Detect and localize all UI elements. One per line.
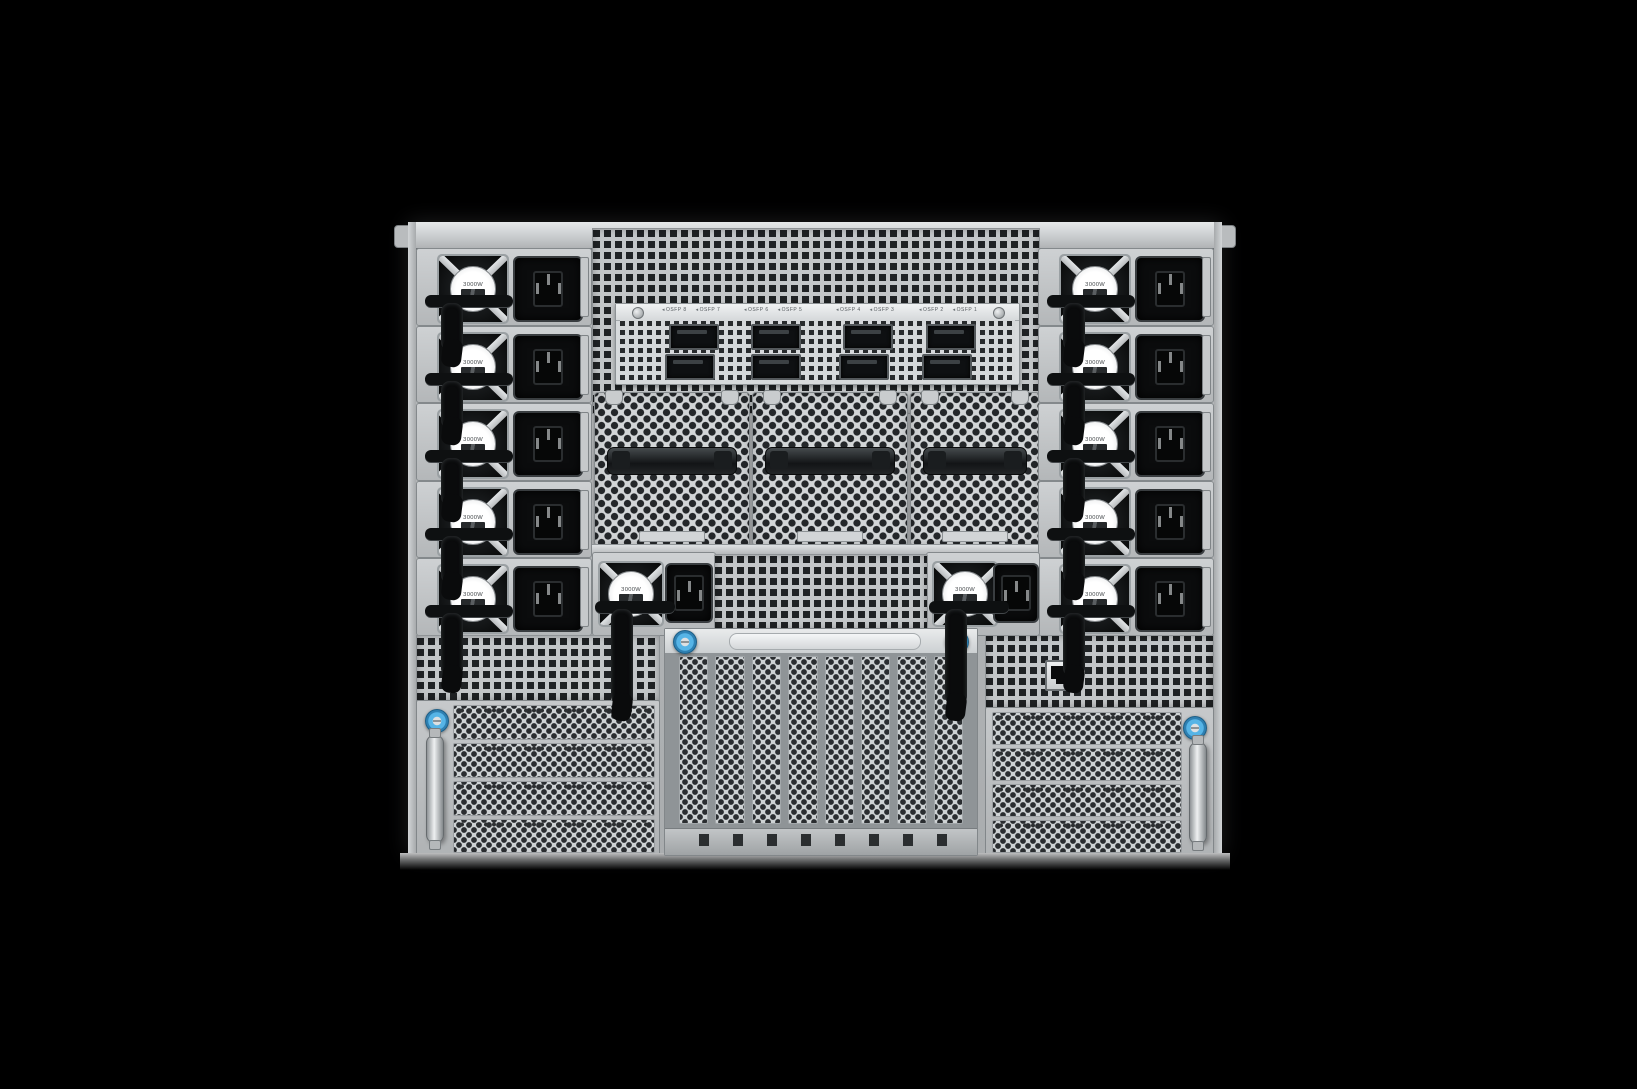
power-supply: 3000W <box>1038 248 1214 326</box>
side-rail-right <box>1214 222 1222 854</box>
vertical-slot-cover <box>825 656 854 824</box>
velcro-strap-icon <box>1063 381 1085 429</box>
psu-latch <box>1202 257 1211 317</box>
tray-latch <box>942 531 1008 542</box>
osfp-port <box>751 354 801 380</box>
triangle-icon: ◂ <box>778 307 781 313</box>
pcie-slot-cover <box>992 748 1182 781</box>
blue-thumbscrew-icon <box>673 630 697 654</box>
psu-wattage: 3000W <box>463 283 483 288</box>
psu-latch <box>580 567 589 627</box>
osfp-label-group: ◂OSFP 4 ◂OSFP 3 <box>836 307 896 312</box>
osfp-label-group: ◂OSFP 8 ◂OSFP 7 <box>662 307 722 312</box>
osfp-label-group: ◂OSFP 2 ◂OSFP 1 <box>919 307 979 312</box>
osfp-label: OSFP 1 <box>957 307 978 313</box>
osfp-port <box>926 324 976 350</box>
osfp-label: OSFP 5 <box>782 307 803 313</box>
triangle-icon: ◂ <box>696 307 699 313</box>
velcro-strap-icon <box>441 381 463 429</box>
bay-handle-icon <box>426 735 444 843</box>
psu-wattage: 3000W <box>463 593 483 598</box>
riser-bottom-rail <box>665 828 977 855</box>
velcro-strap-icon <box>945 609 967 705</box>
c19-power-inlet <box>1135 489 1205 555</box>
riser-handle <box>729 633 921 650</box>
psu-handle-icon <box>425 605 513 617</box>
velcro-strap-icon <box>441 303 463 351</box>
triangle-icon: ◂ <box>836 307 839 313</box>
psu-wattage: 3000W <box>1085 360 1105 365</box>
osfp-label: OSFP 3 <box>874 307 895 313</box>
tray-handle-icon <box>923 447 1027 475</box>
psu-wattage: 3000W <box>463 360 483 365</box>
psu-handle-icon <box>1047 450 1135 462</box>
side-rail-left <box>408 222 416 854</box>
psu-handle-icon <box>425 450 513 462</box>
osfp-label: OSFP 7 <box>700 307 721 313</box>
triangle-icon: ◂ <box>953 307 956 313</box>
fan-tray <box>910 392 1040 546</box>
psu-column-left: 3000W 3000W 3000W 3000W <box>416 248 592 636</box>
expansion-bay-right <box>985 707 1214 856</box>
osfp-panel-body <box>620 320 1015 380</box>
osfp-port <box>843 324 893 350</box>
velcro-strap-icon <box>1063 613 1085 677</box>
c19-power-inlet <box>665 563 713 623</box>
triangle-icon: ◂ <box>919 307 922 313</box>
product-photo-background: ◂OSFP 8 ◂OSFP 7 ◂OSFP 6 ◂OSFP 5 ◂OSFP 4 … <box>0 0 1637 1089</box>
psu-latch <box>1202 412 1211 472</box>
psu-wattage: 3000W <box>1085 593 1105 598</box>
c19-power-inlet <box>1135 566 1205 632</box>
osfp-port <box>665 354 715 380</box>
velcro-strap-icon <box>611 609 633 705</box>
vertical-slot-cover <box>715 656 744 824</box>
psu-handle-icon <box>929 601 1009 613</box>
c19-power-inlet <box>513 256 583 322</box>
bottom-right-vent-grille <box>985 635 1214 708</box>
osfp-label: OSFP 2 <box>923 307 944 313</box>
psu-handle-icon <box>425 295 513 307</box>
psu-handle-icon <box>595 601 675 613</box>
velcro-strap-icon <box>1063 303 1085 351</box>
psu-handle-icon <box>1047 528 1135 540</box>
triangle-icon: ◂ <box>662 307 665 313</box>
vertical-slot-cover <box>788 656 817 824</box>
psu-latch <box>580 412 589 472</box>
c19-power-inlet <box>513 566 583 632</box>
osfp-port <box>669 324 719 350</box>
psu-column-right: 3000W 3000W 3000W 3000W <box>1038 248 1214 636</box>
c19-power-inlet <box>993 563 1039 623</box>
psu-wattage: 3000W <box>463 515 483 520</box>
vertical-slot-cover <box>897 656 926 824</box>
tray-latch <box>639 531 705 542</box>
pcie-slot-cover <box>992 712 1182 745</box>
osfp-network-panel: ◂OSFP 8 ◂OSFP 7 ◂OSFP 6 ◂OSFP 5 ◂OSFP 4 … <box>615 303 1020 385</box>
psu-handle-icon <box>425 528 513 540</box>
osfp-port <box>839 354 889 380</box>
velcro-strap-icon <box>1063 536 1085 584</box>
power-supply: 3000W <box>416 248 592 326</box>
server-rear-chassis: ◂OSFP 8 ◂OSFP 7 ◂OSFP 6 ◂OSFP 5 ◂OSFP 4 … <box>408 222 1222 854</box>
c19-power-inlet <box>1135 256 1205 322</box>
tray-handle-icon <box>765 447 895 475</box>
psu-wattage: 3000W <box>621 588 641 593</box>
psu-wattage: 3000W <box>1085 515 1105 520</box>
panel-screw-icon <box>632 307 644 319</box>
psu-wattage: 3000W <box>955 588 975 593</box>
psu-wattage: 3000W <box>463 438 483 443</box>
psu-handle-icon <box>1047 373 1135 385</box>
triangle-icon: ◂ <box>870 307 873 313</box>
psu-wattage: 3000W <box>1085 438 1105 443</box>
osfp-label-strip: ◂OSFP 8 ◂OSFP 7 ◂OSFP 6 ◂OSFP 5 ◂OSFP 4 … <box>616 304 1019 321</box>
vertical-slot-cover <box>679 656 708 824</box>
vertical-slot-cover <box>861 656 890 824</box>
velcro-strap-icon <box>441 613 463 677</box>
power-supply: 3000W <box>926 552 1040 636</box>
osfp-label: OSFP 8 <box>666 307 687 313</box>
tray-handle-icon <box>607 447 737 475</box>
fan-tray <box>752 392 908 546</box>
pcie-slot-cover <box>992 820 1182 853</box>
psu-latch <box>580 257 589 317</box>
velcro-strap-icon <box>1063 458 1085 506</box>
c19-power-inlet <box>1135 411 1205 477</box>
tray-latch <box>797 531 863 542</box>
psu-handle-icon <box>1047 605 1135 617</box>
c19-power-inlet <box>1135 334 1205 400</box>
c19-power-inlet <box>513 334 583 400</box>
psu-latch <box>1202 335 1211 395</box>
psu-latch <box>1202 567 1211 627</box>
psu-wattage: 3000W <box>1085 283 1105 288</box>
osfp-port <box>751 324 801 350</box>
pcie-slot-cover <box>453 743 655 778</box>
power-supply: 3000W <box>592 552 716 636</box>
expansion-bay-left <box>416 700 660 856</box>
psu-latch <box>580 490 589 550</box>
osfp-port <box>922 354 972 380</box>
velcro-strap-icon <box>441 458 463 506</box>
psu-latch <box>1202 490 1211 550</box>
pcie-slot-cover <box>453 781 655 816</box>
osfp-label: OSFP 4 <box>840 307 861 313</box>
vertical-slot-cover <box>752 656 781 824</box>
center-riser-module <box>664 628 978 856</box>
psu-latch <box>580 335 589 395</box>
panel-screw-icon <box>993 307 1005 319</box>
c19-power-inlet <box>513 489 583 555</box>
rack-ear-right <box>1220 225 1236 248</box>
pcie-slot-cover <box>453 819 655 853</box>
osfp-label-group: ◂OSFP 6 ◂OSFP 5 <box>744 307 804 312</box>
pcie-slot-cover <box>992 784 1182 817</box>
bay-handle-icon <box>1189 742 1207 844</box>
velcro-strap-icon <box>441 536 463 584</box>
triangle-icon: ◂ <box>744 307 747 313</box>
fan-tray <box>594 392 750 546</box>
osfp-label: OSFP 6 <box>748 307 769 313</box>
psu-handle-icon <box>425 373 513 385</box>
c19-power-inlet <box>513 411 583 477</box>
mid-vent-grille <box>714 554 928 630</box>
psu-handle-icon <box>1047 295 1135 307</box>
riser-slot-area <box>665 653 977 829</box>
riser-top-bar <box>665 629 977 654</box>
